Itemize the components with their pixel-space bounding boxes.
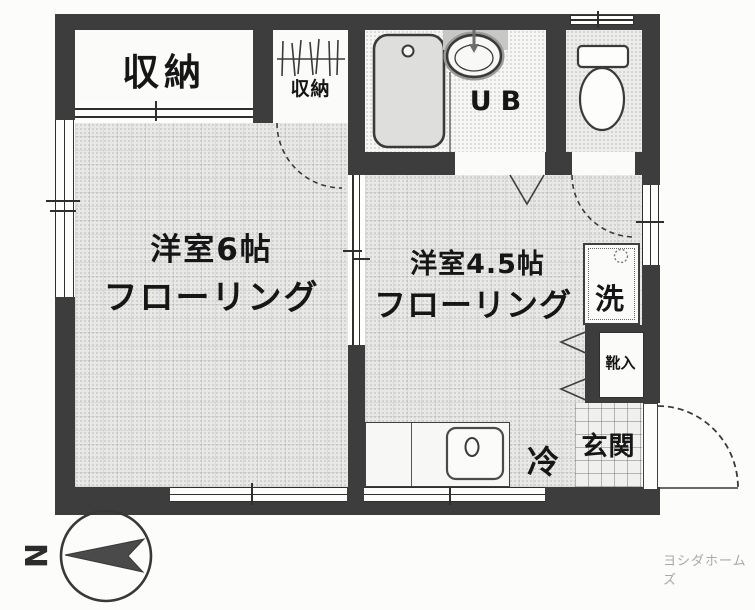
shoe-cabinet-label: 靴入 [599,352,642,373]
window-tick [597,11,599,28]
wall-bath-toilet [546,14,566,175]
wall-divider-upper [348,14,365,175]
closet-small-threshold [273,105,348,123]
kitchen-counter [365,422,510,487]
window-tick [636,221,664,223]
window-toilet-top [570,15,634,25]
window-tick [251,483,253,505]
compass-north-label: N [17,543,52,568]
wall-divider-lower [348,345,365,515]
window-bottom-left [170,487,347,502]
wall-left-lower [55,297,75,515]
compass [61,511,151,601]
unit-bath-label: UB [455,86,545,117]
entrance-door-arc [658,406,738,488]
window-tick [46,200,80,202]
window-right-wall [642,185,659,265]
company-credit: ヨシダホームズ [663,550,755,588]
entrance-door-leaf [643,403,658,490]
closet-small-label: 収納 [273,74,348,101]
room-right-name: 洋室4.5帖 [365,242,590,281]
room-left-name: 洋室6帖 [75,224,348,269]
wall-closet-pillar [253,14,273,123]
room-left-floor-label: フローリング [70,270,353,319]
room-right-floor-label: フローリング [358,280,588,326]
wall-left-upper [55,14,75,120]
floor-plan: 収納 収納 UB 洋室6帖 フローリング 洋室4.5帖 フローリング 洗 靴入 … [0,0,755,610]
bath-door-opening [455,152,545,175]
window-bottom-right [364,487,545,502]
wall-right-upper [642,14,660,185]
refrigerator-label: 冷 [522,437,564,483]
closet-large-label: 収納 [75,42,253,96]
entrance-label: 玄関 [575,426,642,463]
closet-sliding-door [75,103,253,123]
washer-label: 洗 [583,276,636,318]
toilet-door-opening [572,152,635,175]
north-arrow-icon [65,539,144,572]
toilet-area [566,30,642,152]
window-tick [50,210,76,212]
